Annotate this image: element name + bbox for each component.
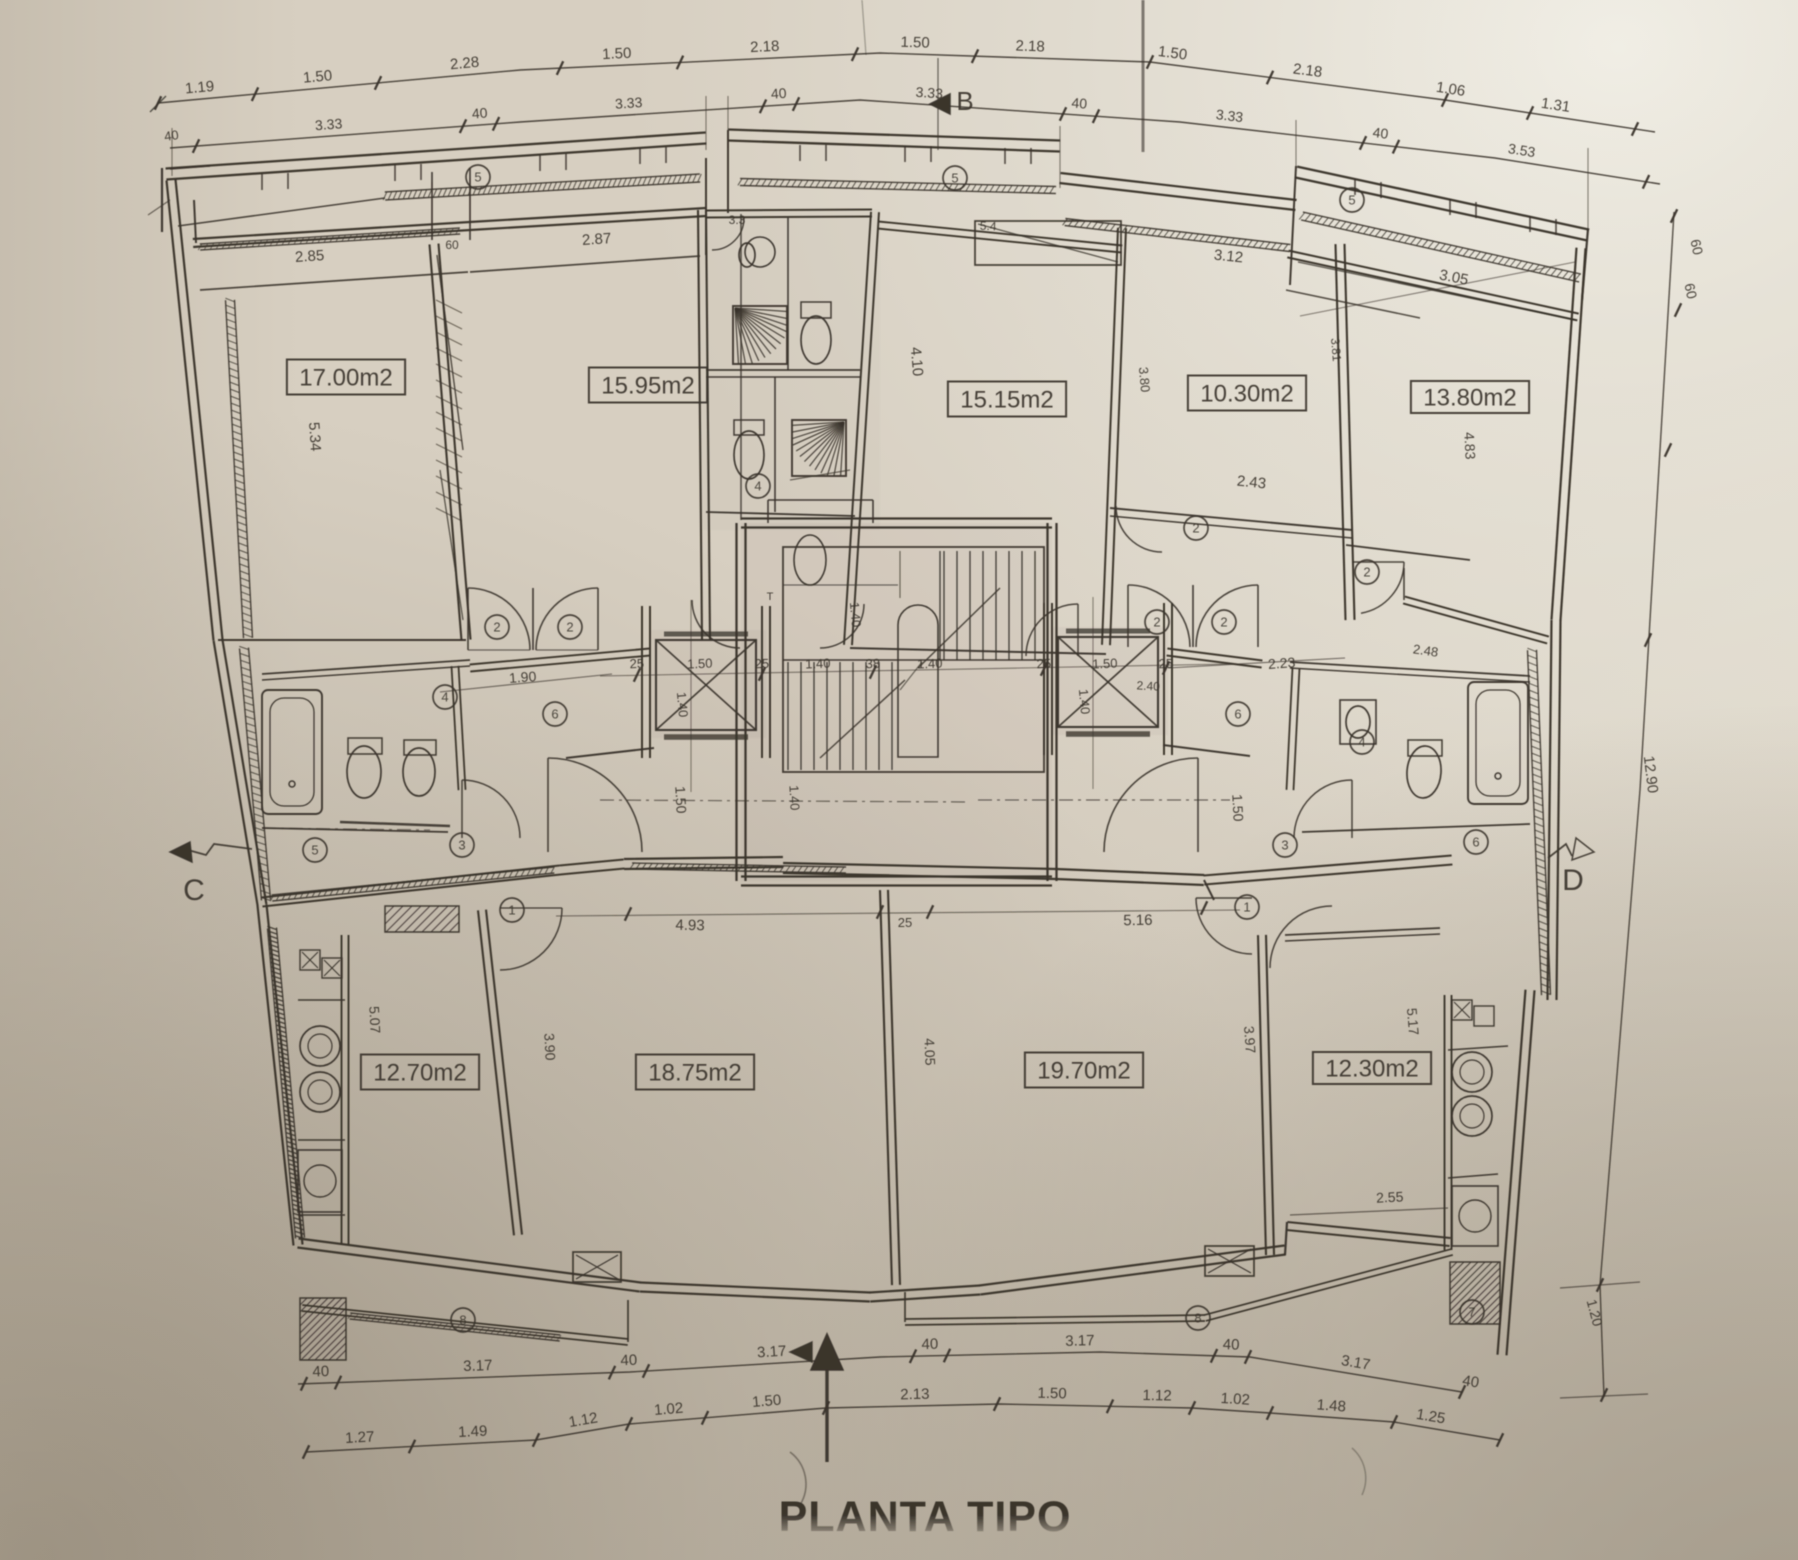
svg-text:1.19: 1.19 — [184, 78, 215, 98]
svg-text:3.80: 3.80 — [1136, 366, 1153, 393]
svg-text:1.02: 1.02 — [1220, 1390, 1250, 1409]
svg-text:8: 8 — [1194, 1311, 1201, 1326]
svg-text:1.02: 1.02 — [653, 1400, 683, 1419]
svg-text:3.33: 3.33 — [314, 115, 343, 133]
svg-text:10.30m2: 10.30m2 — [1200, 381, 1293, 408]
svg-text:1.50: 1.50 — [687, 656, 713, 672]
svg-text:5: 5 — [1348, 193, 1355, 208]
svg-text:38: 38 — [865, 656, 880, 671]
svg-text:5: 5 — [951, 171, 958, 186]
svg-text:3.33: 3.33 — [615, 94, 643, 112]
svg-text:2.28: 2.28 — [449, 54, 480, 74]
svg-text:13.80m2: 13.80m2 — [1423, 385, 1516, 412]
svg-text:25: 25 — [898, 915, 912, 930]
svg-text:2.18: 2.18 — [750, 38, 780, 56]
svg-text:5: 5 — [474, 170, 481, 185]
svg-text:1.12: 1.12 — [1142, 1387, 1172, 1405]
svg-text:3.97: 3.97 — [1241, 1026, 1259, 1055]
svg-text:40: 40 — [921, 1336, 938, 1353]
svg-text:1.50: 1.50 — [1229, 794, 1246, 822]
svg-text:15.95m2: 15.95m2 — [601, 373, 694, 400]
svg-text:2: 2 — [1153, 615, 1160, 630]
svg-text:2.55: 2.55 — [1376, 1188, 1404, 1205]
svg-text:T: T — [767, 591, 774, 603]
svg-text:5.07: 5.07 — [366, 1006, 383, 1034]
svg-text:60: 60 — [445, 238, 459, 252]
svg-text:4: 4 — [1358, 735, 1365, 750]
svg-text:B: B — [956, 86, 973, 116]
svg-text:40: 40 — [163, 127, 179, 144]
svg-text:40: 40 — [1372, 124, 1390, 142]
svg-text:12.30m2: 12.30m2 — [1325, 1056, 1418, 1083]
svg-text:3.33: 3.33 — [1215, 106, 1244, 125]
svg-text:1.50: 1.50 — [751, 1392, 781, 1411]
svg-text:2: 2 — [566, 620, 573, 635]
svg-text:2: 2 — [1220, 615, 1227, 630]
svg-text:40: 40 — [471, 104, 488, 121]
svg-text:40: 40 — [770, 85, 787, 102]
svg-text:1.48: 1.48 — [1316, 1396, 1346, 1415]
svg-text:PLANTA TIPO: PLANTA TIPO — [779, 1493, 1072, 1541]
svg-text:3.17: 3.17 — [463, 1357, 493, 1375]
svg-text:3: 3 — [458, 838, 465, 853]
svg-text:4.93: 4.93 — [675, 917, 704, 935]
svg-text:2.18: 2.18 — [1015, 38, 1045, 56]
svg-text:40: 40 — [1461, 1372, 1480, 1391]
svg-text:6: 6 — [551, 707, 558, 722]
svg-text:2: 2 — [493, 620, 500, 635]
svg-text:2: 2 — [1363, 565, 1370, 580]
svg-text:1.27: 1.27 — [345, 1428, 375, 1446]
svg-text:2.87: 2.87 — [582, 230, 612, 249]
svg-text:4.05: 4.05 — [922, 1038, 939, 1066]
svg-text:5.16: 5.16 — [1123, 912, 1152, 930]
svg-text:17.00m2: 17.00m2 — [299, 365, 392, 392]
svg-text:2.43: 2.43 — [1236, 473, 1267, 493]
svg-text:5: 5 — [311, 843, 318, 858]
svg-text:2.40: 2.40 — [1136, 678, 1160, 693]
svg-text:5.34: 5.34 — [305, 422, 324, 452]
svg-text:3.81: 3.81 — [1328, 337, 1344, 362]
svg-text:5.17: 5.17 — [1404, 1007, 1422, 1036]
svg-text:25: 25 — [754, 656, 769, 671]
svg-text:2.13: 2.13 — [900, 1386, 930, 1404]
svg-text:1.50: 1.50 — [602, 45, 632, 63]
svg-text:4.83: 4.83 — [1461, 432, 1478, 460]
svg-text:4: 4 — [754, 479, 761, 494]
svg-text:40: 40 — [620, 1352, 637, 1370]
svg-text:1.49: 1.49 — [458, 1423, 488, 1441]
svg-text:40: 40 — [1071, 95, 1088, 112]
svg-text:1.40: 1.40 — [847, 601, 864, 628]
svg-text:6: 6 — [1472, 835, 1479, 850]
svg-text:12.70m2: 12.70m2 — [373, 1060, 466, 1087]
svg-text:1.50: 1.50 — [900, 34, 930, 52]
svg-text:40: 40 — [312, 1363, 329, 1381]
svg-text:1: 1 — [508, 903, 515, 918]
svg-text:D: D — [1562, 864, 1584, 897]
svg-text:3.12: 3.12 — [1213, 247, 1244, 267]
svg-text:6: 6 — [1234, 707, 1241, 722]
svg-text:2.85: 2.85 — [295, 247, 325, 266]
svg-text:7: 7 — [1468, 1305, 1475, 1320]
svg-text:3: 3 — [1281, 838, 1288, 853]
svg-text:1.40: 1.40 — [674, 691, 691, 718]
svg-text:1.40: 1.40 — [1076, 688, 1093, 715]
svg-text:1: 1 — [1243, 900, 1250, 915]
svg-text:18.75m2: 18.75m2 — [648, 1060, 741, 1087]
svg-text:15.15m2: 15.15m2 — [960, 387, 1053, 414]
svg-text:C: C — [183, 874, 205, 907]
svg-text:19.70m2: 19.70m2 — [1037, 1058, 1130, 1085]
svg-text:3.17: 3.17 — [757, 1343, 787, 1362]
svg-text:1.50: 1.50 — [302, 67, 333, 87]
svg-text:4.10: 4.10 — [907, 346, 926, 377]
svg-text:3.17: 3.17 — [1065, 1332, 1095, 1350]
svg-text:4: 4 — [441, 690, 448, 705]
svg-text:40: 40 — [1223, 1336, 1240, 1354]
svg-text:1.40: 1.40 — [786, 785, 802, 811]
svg-text:2: 2 — [1192, 521, 1199, 536]
svg-text:25: 25 — [629, 656, 644, 671]
svg-text:1.40: 1.40 — [805, 656, 831, 672]
svg-text:1.50: 1.50 — [1037, 1385, 1067, 1403]
svg-text:3.90: 3.90 — [541, 1033, 558, 1061]
svg-text:1.50: 1.50 — [1092, 656, 1118, 672]
